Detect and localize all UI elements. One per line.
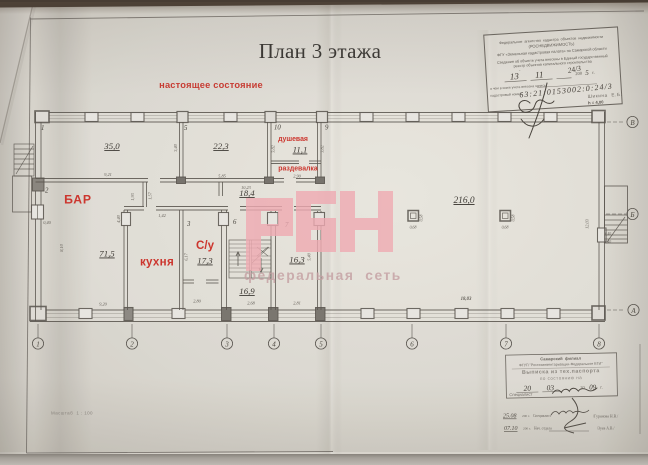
svg-text:8: 8 (597, 340, 601, 348)
svg-text:3: 3 (224, 340, 229, 348)
svg-text:10: 10 (274, 125, 281, 132)
svg-text:4: 4 (272, 340, 276, 348)
svg-text:07.10: 07.10 (504, 426, 518, 432)
svg-text:6: 6 (410, 340, 414, 348)
svg-text:по состоянию на: по состоянию на (540, 375, 582, 381)
svg-text:71,5: 71,5 (99, 249, 115, 259)
svg-text:22,3: 22,3 (213, 141, 229, 151)
svg-text:11: 11 (535, 70, 544, 80)
svg-text:/Гуранова Н.В./: /Гуранова Н.В./ (593, 415, 619, 419)
svg-text:г.: г. (592, 70, 595, 75)
svg-text:5: 5 (319, 340, 323, 348)
svg-text:Нач. отдела: Нач. отдела (534, 427, 552, 431)
svg-text:16,9: 16,9 (239, 286, 255, 296)
svg-text:кухня: кухня (140, 256, 174, 269)
svg-text:200 г.: 200 г. (522, 414, 530, 418)
svg-text:1: 1 (36, 340, 40, 348)
svg-text:федеральная сеть: федеральная сеть (244, 268, 402, 283)
svg-text:г.: г. (600, 385, 603, 390)
svg-text:35,0: 35,0 (103, 141, 120, 151)
svg-text:11,1: 11,1 (293, 145, 308, 155)
svg-text:200 г.: 200 г. (523, 427, 531, 431)
svg-text:настоящее состояние: настоящее состояние (159, 80, 263, 90)
svg-text:h = 4,00: h = 4,00 (588, 99, 604, 105)
svg-text:Специалист: Специалист (509, 392, 532, 397)
svg-text:Самарский филиал: Самарский филиал (540, 356, 581, 362)
svg-text:раздевалка: раздевалка (278, 166, 318, 173)
svg-text:9: 9 (325, 125, 329, 132)
svg-text:/Зуев А.В./: /Зуев А.В./ (597, 427, 615, 431)
svg-text:18,03: 18,03 (461, 297, 472, 302)
svg-text:Масштаб 1 : 100: Масштаб 1 : 100 (51, 411, 93, 416)
svg-text:БАР: БАР (64, 193, 92, 207)
svg-text:25.08: 25.08 (503, 414, 517, 420)
svg-text:Б: Б (629, 211, 634, 219)
svg-text:09: 09 (589, 383, 597, 391)
svg-text:216,0: 216,0 (453, 196, 474, 206)
svg-text:План 3 этажа: План 3 этажа (259, 39, 382, 63)
svg-text:6: 6 (233, 219, 237, 226)
svg-text:С/у: С/у (196, 239, 215, 252)
svg-text:5: 5 (184, 125, 188, 132)
svg-text:03: 03 (546, 383, 554, 392)
svg-text:7: 7 (504, 340, 508, 348)
svg-text:17,3: 17,3 (197, 256, 213, 266)
svg-text:2: 2 (45, 188, 49, 195)
svg-text:16,3: 16,3 (289, 255, 305, 265)
svg-text:3: 3 (186, 221, 191, 228)
svg-text:А: А (630, 307, 636, 315)
svg-text:1: 1 (41, 125, 44, 132)
svg-text:душевая: душевая (278, 136, 308, 143)
svg-text:2: 2 (130, 340, 134, 348)
svg-text:Специалист: Специалист (533, 414, 552, 418)
svg-text:В: В (630, 119, 635, 127)
svg-text:13: 13 (510, 71, 520, 82)
